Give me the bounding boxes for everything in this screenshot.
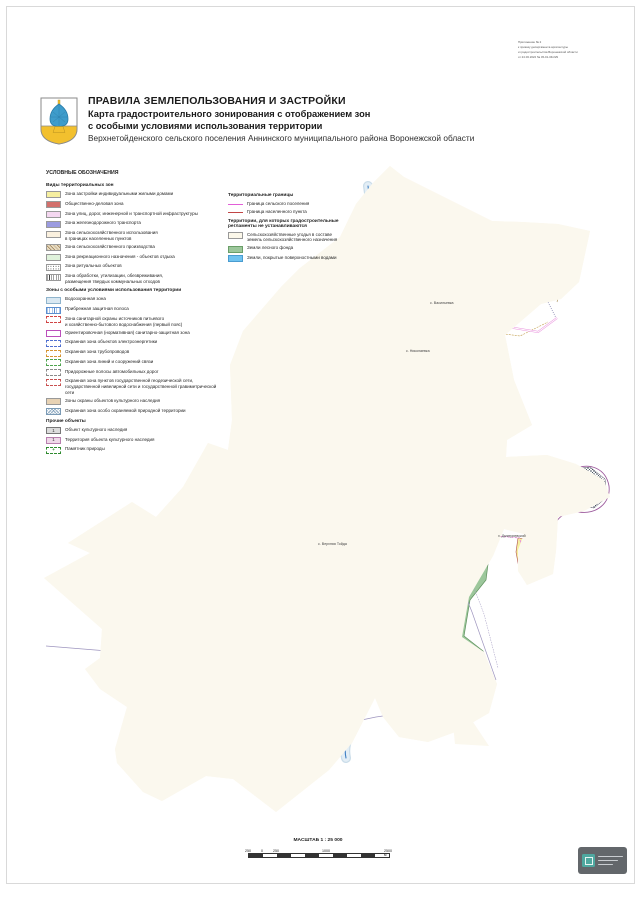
legend-item: Земли лесного фонда bbox=[228, 245, 413, 252]
legend-item: Зона железнодорожного транспорта bbox=[46, 220, 224, 227]
legend-item: Прибрежная защитная полоса bbox=[46, 306, 224, 313]
legend-item: Зона сельскохозяйственного производства bbox=[46, 244, 224, 251]
stamp-text-lines bbox=[598, 856, 623, 866]
legend-swatch-sz-szz bbox=[46, 330, 61, 337]
legend-item-label: Сельскохозяйственные угодья в составе зе… bbox=[247, 232, 337, 243]
legend-swatch-okn-ter: 1 bbox=[46, 437, 61, 444]
legend-item: 1Территория объекта культурного наследия bbox=[46, 437, 224, 444]
legend-item: Ориентировочная (нормативная) санитарно-… bbox=[46, 330, 224, 337]
legend-swatch-zone-red bbox=[46, 201, 61, 208]
legend-item-label: Зона санитарной охраны источников питьев… bbox=[65, 316, 182, 327]
legend-swatch-sz-comm bbox=[46, 359, 61, 366]
legend-item-label: Территория объекта культурного наследия bbox=[65, 437, 155, 443]
legend-item: Общественно-деловая зона bbox=[46, 201, 224, 208]
legend-swatch-sz-heritage bbox=[46, 398, 61, 405]
legend-section-title: Виды территориальных зон bbox=[46, 183, 224, 188]
legend-item: Зоны охраны объектов культурного наследи… bbox=[46, 398, 224, 405]
legend-section-title: Территории, для которых градостроительны… bbox=[228, 219, 413, 229]
legend-item-label: Прибрежная защитная полоса bbox=[65, 306, 129, 312]
legend-item-label: Охранная зона линий и сооружений связи bbox=[65, 359, 153, 365]
legend-item: Охранная зона линий и сооружений связи bbox=[46, 359, 224, 366]
legend-item-label: Земли, покрытые поверхностными водами bbox=[247, 255, 337, 261]
legend-item-label: Охранная зона трубопроводов bbox=[65, 349, 129, 355]
legend-swatch-zone-pink bbox=[46, 211, 61, 218]
legend-swatch-ter-blue bbox=[228, 255, 243, 262]
legend-item-label: Придорожные полосы автомобильных дорог bbox=[65, 369, 159, 375]
legend-item: Охранная зона особо охраняемой природной… bbox=[46, 408, 224, 415]
signature-stamp bbox=[578, 847, 627, 874]
legend-item-label: Водоохранная зона bbox=[65, 296, 106, 302]
legend-column-left: Виды территориальных зонЗона застройки и… bbox=[46, 179, 224, 456]
legend-item: Охранная зона объектов электроэнергетики bbox=[46, 339, 224, 346]
legend-item-label: Зона железнодорожного транспорта bbox=[65, 220, 141, 226]
legend-swatch-zone-lightgreen bbox=[46, 254, 61, 261]
settlement-label: х. Дмитриевский bbox=[498, 534, 526, 538]
legend-section-title: Прочие объекты bbox=[46, 419, 224, 424]
legend-item-label: Зона ритуальных объектов bbox=[65, 263, 122, 269]
settlement-label: с. Васильевка bbox=[430, 301, 454, 305]
legend-swatch-ter-cream bbox=[228, 232, 243, 239]
legend-swatch-zone-hatch-tan bbox=[46, 244, 61, 251]
legend-item: 1Объект культурного наследия bbox=[46, 427, 224, 434]
settlement-label: с. Николаевка bbox=[406, 349, 430, 353]
legend-item-label: Зона улиц, дорог, инженерной и транспорт… bbox=[65, 211, 198, 217]
legend-swatch-zone-vlines bbox=[46, 274, 61, 281]
legend-item: Земли, покрытые поверхностными водами bbox=[228, 255, 413, 262]
legend-item-label: Зона сельскохозяйственного производства bbox=[65, 244, 155, 250]
legend-item-label: Зона застройки индивидуальными жилыми до… bbox=[65, 191, 173, 197]
legend-swatch-sz-coast bbox=[46, 307, 61, 314]
legend-title: УСЛОВНЫЕ ОБОЗНАЧЕНИЯ bbox=[46, 170, 446, 176]
legend-item: Зона обработки, утилизации, обезвреживан… bbox=[46, 273, 224, 284]
legend-item: Водоохранная зона bbox=[46, 296, 224, 303]
legend-section-title: Зоны с особыми условиями использования т… bbox=[46, 288, 224, 293]
scale-title: МАСШТАБ 1 : 25 000 bbox=[240, 838, 396, 843]
legend-item: Придорожные полосы автомобильных дорог bbox=[46, 369, 224, 376]
legend-column-right: Территориальные границыГраница сельского… bbox=[228, 189, 413, 265]
legend-item-label: Зона сельскохозяйственного использования… bbox=[65, 230, 158, 241]
legend-item: Зона улиц, дорог, инженерной и транспорт… bbox=[46, 211, 224, 218]
map-legend: УСЛОВНЫЕ ОБОЗНАЧЕНИЯ Виды территориальны… bbox=[46, 170, 446, 179]
legend-item-label: Памятник природы bbox=[65, 446, 105, 452]
legend-swatch-sz-geo bbox=[46, 379, 61, 386]
legend-item: Зона сельскохозяйственного использования… bbox=[46, 230, 224, 241]
legend-item-label: Зоны охраны объектов культурного наследи… bbox=[65, 398, 160, 404]
legend-item-label: Общественно-деловая зона bbox=[65, 201, 124, 207]
legend-item: Зона рекреационного назначения - объекто… bbox=[46, 254, 224, 261]
scale-ticks: 250 0 250 1000 2500 м bbox=[248, 858, 396, 864]
legend-item: Охранная зона трубопроводов bbox=[46, 349, 224, 356]
legend-item-label: Граница сельского поселения bbox=[247, 201, 309, 207]
legend-swatch-sz-roadside bbox=[46, 369, 61, 376]
legend-swatch-zone-yellow bbox=[46, 191, 61, 198]
legend-item-label: Объект культурного наследия bbox=[65, 427, 127, 433]
legend-swatch-line-red bbox=[228, 212, 243, 213]
legend-item: Зона санитарной охраны источников питьев… bbox=[46, 316, 224, 327]
legend-swatch-sz-pipe bbox=[46, 350, 61, 357]
legend-swatch-sz-oopt bbox=[46, 408, 61, 415]
legend-item: Граница сельского поселения bbox=[228, 201, 413, 207]
legend-item-label: Охранная зона объектов электроэнергетики bbox=[65, 339, 157, 345]
legend-item-label: Зона обработки, утилизации, обезвреживан… bbox=[65, 273, 163, 284]
settlement-label: с. Верхняя Тойда bbox=[318, 542, 347, 546]
legend-item: Граница населенного пункта bbox=[228, 209, 413, 215]
legend-item: Зона застройки индивидуальными жилыми до… bbox=[46, 191, 224, 198]
scale-bar: МАСШТАБ 1 : 25 000 250 0 250 1000 2500 м bbox=[240, 838, 396, 864]
legend-item-label: Граница населенного пункта bbox=[247, 209, 307, 215]
legend-swatch-nat-mon: + bbox=[46, 447, 61, 454]
legend-swatch-zone-violet bbox=[46, 221, 61, 228]
legend-item: Зона ритуальных объектов bbox=[46, 263, 224, 270]
stamp-logo-icon bbox=[582, 854, 595, 867]
legend-swatch-zone-cream bbox=[46, 231, 61, 238]
legend-item-label: Охранная зона особо охраняемой природной… bbox=[65, 408, 186, 414]
legend-swatch-sz-zso bbox=[46, 316, 61, 323]
legend-swatch-sz-water bbox=[46, 297, 61, 304]
legend-item-label: Ориентировочная (нормативная) санитарно-… bbox=[65, 330, 190, 336]
legend-item-label: Зона рекреационного назначения - объекто… bbox=[65, 254, 175, 260]
legend-item-label: Охранная зона пунктов государственной ге… bbox=[65, 378, 224, 395]
legend-item-label: Земли лесного фонда bbox=[247, 245, 293, 251]
legend-item: Охранная зона пунктов государственной ге… bbox=[46, 378, 224, 395]
legend-swatch-zone-dots bbox=[46, 264, 61, 271]
legend-swatch-line-magenta bbox=[228, 204, 243, 205]
legend-item: +Памятник природы bbox=[46, 446, 224, 453]
legend-swatch-ter-green bbox=[228, 246, 243, 253]
legend-section-title: Территориальные границы bbox=[228, 193, 413, 198]
legend-swatch-sz-electro bbox=[46, 340, 61, 347]
legend-item: Сельскохозяйственные угодья в составе зе… bbox=[228, 232, 413, 243]
legend-swatch-okn-obj: 1 bbox=[46, 427, 61, 434]
